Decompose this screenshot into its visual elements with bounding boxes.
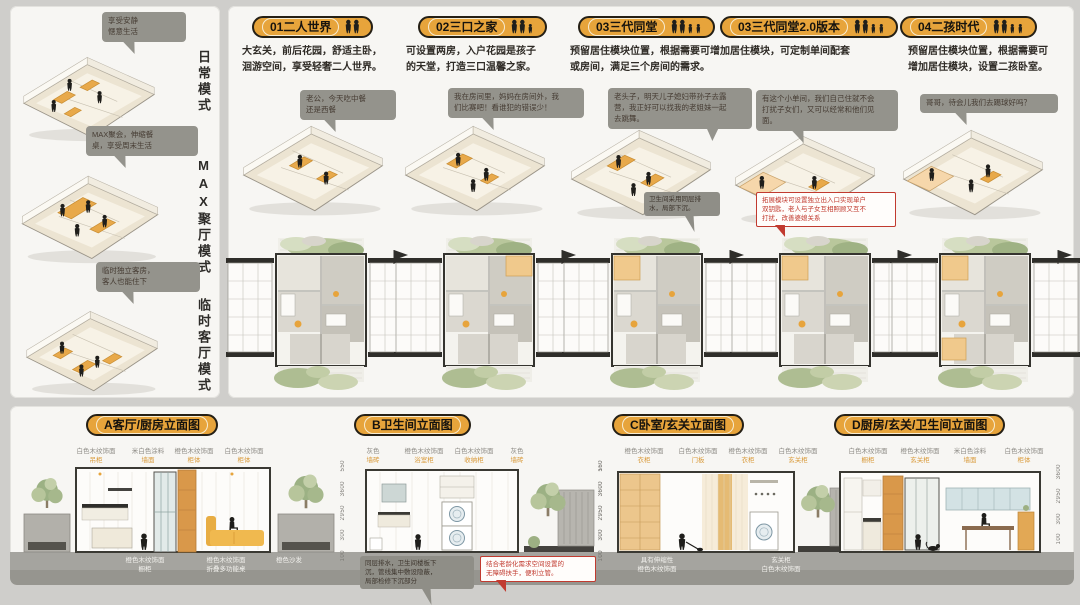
mode-label-max: MAX聚厅模式 [194,158,213,276]
axon-scenario-2-illustration [400,104,550,218]
family-icon [991,19,1027,35]
scenarios-panel: 01二人世界 02三口之家 03三代同堂 03三代同堂2.0版本 04二孩时代 … [228,6,1074,398]
scenario-desc-2: 可设置两房，入户花园是孩子 的天堂，打造三口温馨之家。 [406,44,564,75]
elevation-title: D厨房/玄关/卫生间立面图 [844,416,995,434]
elevation-a-drawing [20,464,340,552]
mode-callout: MAX聚会，伸缩餐 桌，享受周末生活 [86,126,198,156]
furniture-label: 玄关柜 白色木纹饰面 [746,556,816,574]
finish-label: 橙色木纹饰面衣柜 [722,448,774,466]
scenario-header-2: 02三口之家 [418,16,547,38]
furniture-label: 橙色木纹饰面 橱柜 [110,556,180,574]
elevation-d-title-pill: D厨房/玄关/卫生间立面图 [834,414,1005,436]
speech-bubble-2: 我在房间里，妈妈在房间外，我 们比赛吧！看谁犯的错误少！ [448,88,584,118]
floor-plan-3 [562,234,752,394]
living-modes-panel: 享受安静 惬意生活 日常模式 MAX聚会，伸缩餐 桌，享受周末生活 MAX聚厅模… [10,6,220,398]
scenario-title: 03三代同堂 [588,18,665,36]
finish-label: 米白色涂料墙面 [122,448,174,466]
scenario-title: 03三代同堂2.0版本 [730,18,848,36]
speech-bubble-4: 有这个小单间，我们自己住就不会 打扰子女们，又可以经常和他们见 面。 [756,90,898,131]
elevation-b-title-pill: B卫生间立面图 [354,414,471,436]
scenario-desc-3: 预留居住模块位置，根据需要可增加居住模块，可定制单间配套 或房间，满足三个房间的… [570,44,900,75]
elevation-d-drawing [836,464,1054,552]
design-board: { "colors": {"accent":"#e7a43b","bubble_… [0,0,1080,591]
speech-bubble-5: 哥哥，待会儿我们去踢球好吗？ [920,94,1058,113]
mode-label-daily: 日常模式 [194,50,213,114]
floor-plan-2 [394,234,584,394]
scenario-header-3: 03三代同堂 [578,16,715,38]
finish-label: 橙色木纹饰面浴室柜 [398,448,450,466]
axon-guest-mode-illustration [12,292,172,396]
scenario-title: 01二人世界 [262,18,339,36]
family-icon [669,19,705,35]
scenario-title: 02三口之家 [428,18,505,36]
finish-label: 橙色木纹饰面衣柜 [618,448,670,466]
drainage-note-b: 同层排水，卫生间楼板下 沉，管线集中敷设隐蔽， 局部检修下沉部分 [360,556,474,589]
scenario-header-1: 01二人世界 [252,16,373,38]
scenario-header-4: 03三代同堂2.0版本 [720,16,898,38]
family-icon [343,19,363,35]
finish-label: 灰色墙砖 [500,448,534,466]
finish-label: 米白色涂料墙面 [944,448,996,466]
elevations-panel: A客厅/厨房立面图 白色木纹饰面吊柜 米白色涂料墙面 橙色木纹饰面柜体 白色木纹… [10,406,1074,585]
finish-label: 白色木纹饰面吊柜 [70,448,122,466]
elevation-c-drawing [610,464,866,552]
mode-label-guest: 临时客厅模式 [194,298,213,394]
finish-label: 白色木纹饰面柜体 [998,448,1050,466]
axon-scenario-5-illustration [898,108,1048,222]
dimension-chain-d: 36002950300100 [1056,464,1062,552]
speech-bubble-3: 老头子，明天儿子媳妇带孙子去露 营，我正好可以找我的老姐妹一起 去跳舞。 [608,88,752,129]
elevation-c-title-pill: C卧室/玄关立面图 [612,414,744,436]
scenario-title: 04二孩时代 [910,18,987,36]
elevation-title: B卫生间立面图 [364,416,461,434]
dimension-chain-a: 55036002950300100 [340,460,346,552]
scenario-desc-5: 预留居住模块位置，根据需要可 增加居住模块，设置二孩卧室。 [908,44,1068,75]
axon-scenario-1-illustration [238,104,388,218]
family-icon [509,19,537,35]
finish-label: 橙色木纹饰面玄关柜 [894,448,946,466]
drainage-note: 卫生间采用同层排 水，局部下沉。 [644,192,720,216]
family-icon [852,19,888,35]
mode-callout: 临时独立客房， 客人也能住下 [96,262,200,292]
finish-label: 灰色墙砖 [356,448,390,466]
scenario-header-5: 04二孩时代 [900,16,1037,38]
finish-label: 白色木纹饰面玄关柜 [772,448,824,466]
finish-label: 白色木纹饰面橱柜 [842,448,894,466]
floor-plan-5 [890,234,1080,394]
scenario-desc-1: 大玄关，前后花园，舒适主卧， 洄游空间，享受轻奢二人世界。 [242,44,400,75]
finish-label: 白色木纹饰面门板 [672,448,724,466]
dual-key-note: 拓展模块可设置独立出入口实现单户 双钥匙，老人与子女互相照顾又互不 打扰，改善婆… [756,192,896,227]
dimension-chain-c: 55036002950300100 [598,460,604,552]
elevation-b-drawing [356,464,594,552]
furniture-label: 橙色木纹饰面 折叠多功能桌 [186,556,266,574]
furniture-label: 具有伸缩性 橙色木纹饰面 [622,556,692,574]
finish-label: 白色木纹饰面柜体 [218,448,270,466]
mode-callout: 享受安静 惬意生活 [102,12,186,42]
furniture-label: 橙色沙发 [264,556,314,565]
finish-label: 橙色木纹饰面柜体 [168,448,220,466]
floor-plan-1 [226,234,416,394]
finish-label: 白色木纹饰面收纳柜 [448,448,500,466]
elevation-a-title-pill: A客厅/厨房立面图 [86,414,218,436]
speech-bubble-1: 老公，今天吃中餐 还是西餐 [300,90,396,120]
accessibility-note-b: 结合老龄化需求空间设置的 无障碍扶手，便利立管。 [480,556,596,582]
elevation-title: C卧室/玄关立面图 [622,416,734,434]
axon-max-party-illustration [10,156,170,264]
elevation-title: A客厅/厨房立面图 [96,416,208,434]
